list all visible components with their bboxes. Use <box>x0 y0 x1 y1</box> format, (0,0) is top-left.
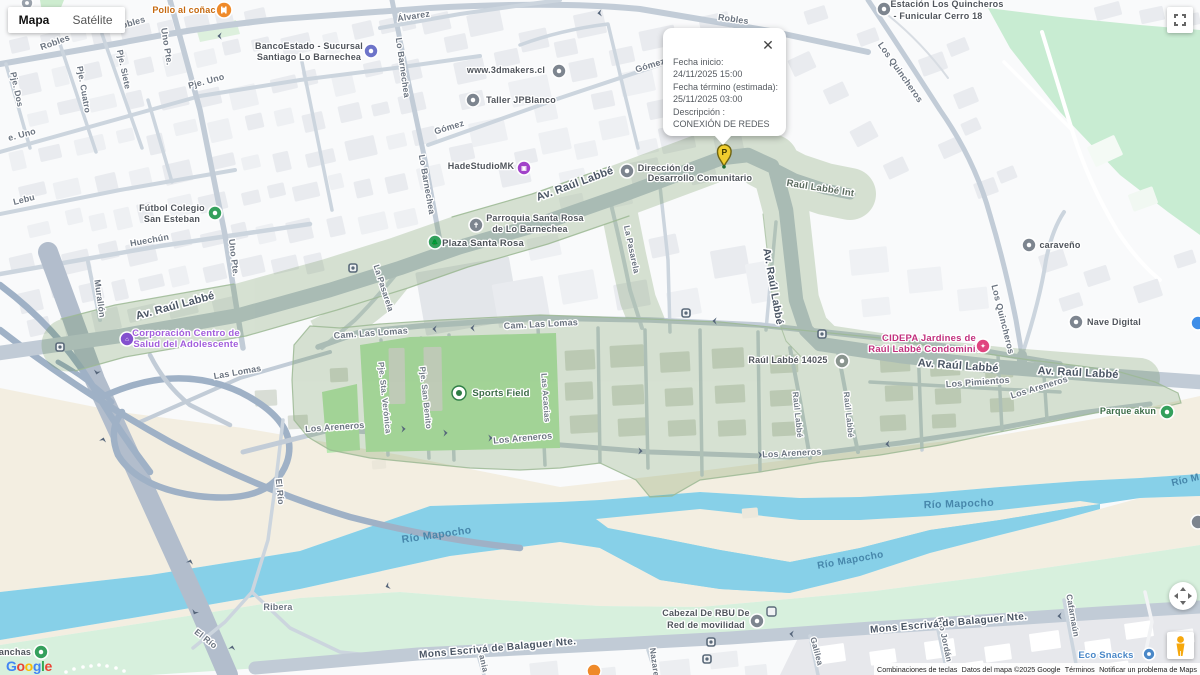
svg-text:Río Mapocho: Río Mapocho <box>924 497 995 511</box>
svg-text:Salud del Adolescente: Salud del Adolescente <box>133 339 238 350</box>
svg-text:Fútbol Colegio: Fútbol Colegio <box>139 203 205 213</box>
svg-text:www.3dmakers.cl: www.3dmakers.cl <box>466 65 545 75</box>
svg-text:de Lo Barnechea: de Lo Barnechea <box>492 224 568 234</box>
svg-text:P: P <box>721 147 727 157</box>
svg-text:- Funicular Cerro 18: - Funicular Cerro 18 <box>893 11 982 21</box>
svg-text:Taller JPBlanco: Taller JPBlanco <box>486 95 556 105</box>
svg-text:🌲: 🌲 <box>431 238 438 246</box>
svg-text:Santiago Lo Barnechea: Santiago Lo Barnechea <box>257 52 362 62</box>
svg-text:Cabezal De RBU De: Cabezal De RBU De <box>662 608 749 618</box>
svg-text:Raúl Labbé Condominio: Raúl Labbé Condominio <box>868 344 981 355</box>
svg-text:Estación Los Quincheros: Estación Los Quincheros <box>890 0 1003 9</box>
svg-text:✦: ✦ <box>980 343 985 350</box>
svg-text:Dirección de: Dirección de <box>638 163 694 173</box>
svg-text:Red de movilidad: Red de movilidad <box>667 620 745 630</box>
svg-text:Parque akun: Parque akun <box>1100 406 1156 416</box>
svg-text:▣: ▣ <box>521 166 527 172</box>
svg-text:Plaza Santa Rosa: Plaza Santa Rosa <box>442 238 524 249</box>
svg-text:BancoEstado - Sucursal: BancoEstado - Sucursal <box>255 41 363 51</box>
svg-text:✝: ✝ <box>473 222 479 230</box>
svg-text:Desarrollo Comunitario: Desarrollo Comunitario <box>648 173 753 183</box>
svg-text:Sports Field: Sports Field <box>472 388 529 399</box>
svg-text:Ribera: Ribera <box>263 602 293 612</box>
svg-text:Eco Snacks: Eco Snacks <box>1078 650 1133 661</box>
svg-text:Pollo al coñac: Pollo al coñac <box>152 5 215 15</box>
svg-text:Parroquia Santa Rosa: Parroquia Santa Rosa <box>486 213 584 223</box>
svg-text:⌂: ⌂ <box>125 337 129 343</box>
svg-text:HadeStudioMK: HadeStudioMK <box>448 161 515 171</box>
svg-text:caraveño: caraveño <box>1039 240 1080 250</box>
svg-text:anchas: anchas <box>0 647 31 657</box>
svg-text:Nave Digital: Nave Digital <box>1087 317 1141 327</box>
svg-text:Corporación Centro de: Corporación Centro de <box>132 328 240 339</box>
svg-text:CIDEPA Jardines de: CIDEPA Jardines de <box>882 333 976 344</box>
svg-text:San Esteban: San Esteban <box>144 214 200 224</box>
svg-text:Raúl Labbé 14025: Raúl Labbé 14025 <box>748 355 827 365</box>
